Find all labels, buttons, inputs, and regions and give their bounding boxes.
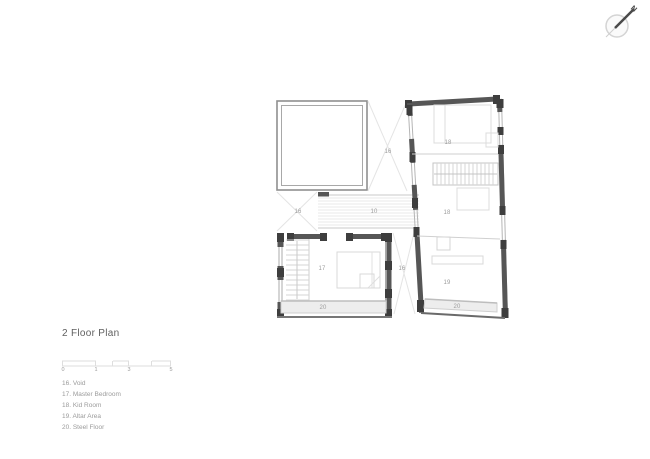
right-block-interior — [412, 105, 500, 312]
steel-floor-left — [281, 301, 386, 313]
room-label-master: 17 — [318, 266, 325, 272]
scale-tick-5: 5 — [169, 368, 172, 374]
legend-item-master-bedroom: 17. Master Bedroom — [62, 392, 121, 399]
scale-bar — [62, 361, 171, 366]
legend-item-steel-floor: 20. Steel Floor — [62, 425, 104, 432]
skylight-square — [277, 101, 367, 190]
room-label-void-lower: 16 — [294, 209, 301, 215]
left-block-interior — [281, 239, 386, 313]
legend-item-kid-room: 18. Kid Room — [62, 403, 101, 410]
scale-tick-0: 0 — [61, 368, 64, 374]
page-title: 2 Floor Plan — [62, 328, 120, 340]
legend-item-void: 16. Void — [62, 381, 86, 388]
left-block-stair — [286, 239, 309, 301]
bridge-hatch — [318, 192, 419, 228]
room-label-kid-lower: 18 — [443, 210, 450, 216]
north-arrow-icon — [606, 9, 634, 37]
drawing-sheet: 16 16 16 10 17 18 18 19 20 20 N 2 Floor … — [0, 0, 650, 459]
room-label-steel-right: 20 — [453, 304, 460, 310]
scale-tick-1: 1 — [94, 368, 97, 374]
room-label-void-upper: 16 — [384, 149, 391, 155]
room-label-altar: 19 — [443, 280, 450, 286]
room-label-bridge: 10 — [370, 209, 377, 215]
room-label-void-middle: 16 — [398, 266, 405, 272]
scale-tick-3: 3 — [127, 368, 130, 374]
legend-item-altar-area: 19. Altar Area — [62, 414, 101, 421]
room-label-steel-left: 20 — [319, 305, 326, 311]
right-block-stair — [433, 163, 498, 185]
room-label-kid-upper: 18 — [444, 140, 451, 146]
